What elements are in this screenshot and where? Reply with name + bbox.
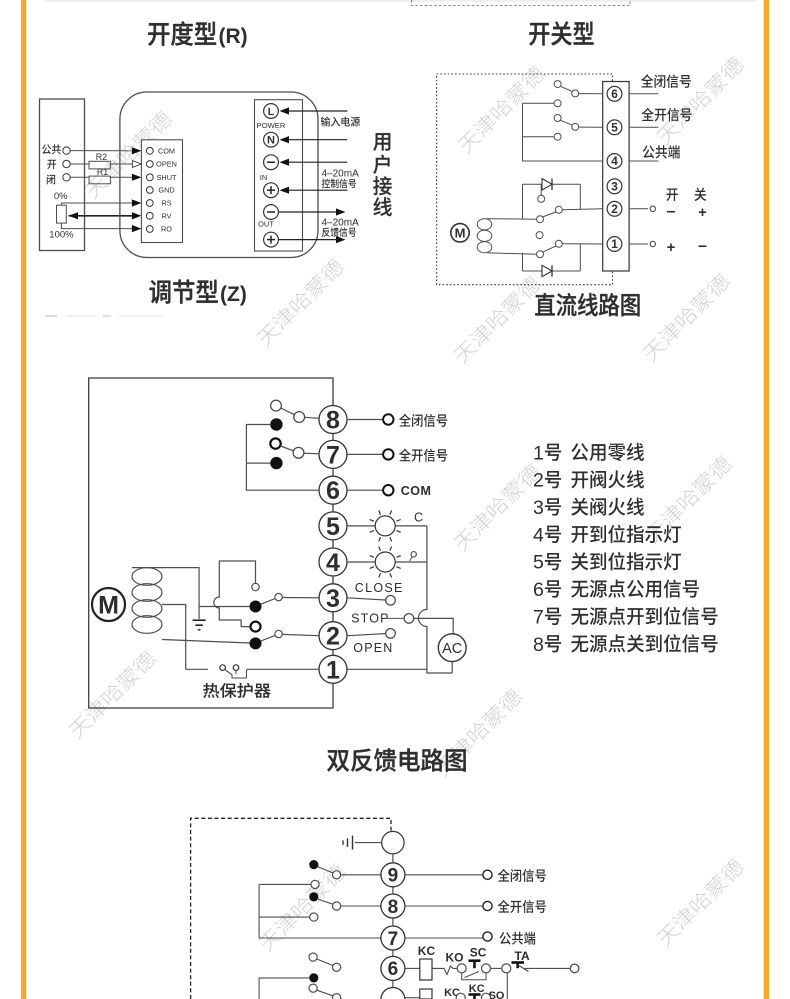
svg-text:4: 4 (611, 154, 618, 168)
svg-text:CLOSE: CLOSE (355, 581, 404, 595)
svg-text:2: 2 (611, 202, 618, 216)
svg-text:COM: COM (401, 484, 432, 498)
svg-text:6: 6 (326, 477, 340, 505)
svg-text:IN: IN (260, 173, 268, 182)
svg-text:L: L (268, 106, 275, 118)
svg-text:KO: KO (446, 951, 464, 965)
svg-text:(Z): (Z) (220, 283, 247, 306)
svg-text:RO: RO (161, 225, 172, 234)
svg-text:SC: SC (470, 946, 487, 960)
svg-text:+: + (667, 240, 675, 256)
svg-text:2: 2 (326, 623, 340, 651)
svg-text:7: 7 (326, 441, 340, 469)
svg-text:100%: 100% (49, 230, 74, 241)
svg-text:6: 6 (388, 959, 399, 980)
svg-text:9: 9 (388, 866, 399, 887)
svg-text:3: 3 (326, 585, 340, 613)
svg-text:4–20mA: 4–20mA (322, 218, 360, 229)
svg-text:7: 7 (533, 606, 544, 628)
svg-text:RV: RV (161, 211, 171, 220)
svg-text:TA: TA (515, 949, 530, 963)
svg-text:4–20mA: 4–20mA (322, 168, 360, 179)
svg-text:+: + (698, 205, 706, 221)
svg-text:2: 2 (533, 470, 544, 492)
svg-text:6: 6 (611, 87, 618, 101)
svg-text:–: – (698, 238, 707, 255)
svg-text:1: 1 (533, 442, 544, 464)
svg-text:3: 3 (611, 180, 618, 194)
svg-text:3: 3 (533, 497, 544, 519)
svg-text:M: M (98, 592, 119, 620)
svg-text:4: 4 (533, 524, 544, 546)
svg-text:1: 1 (326, 656, 340, 684)
svg-text:COM: COM (158, 146, 175, 155)
svg-text:R2: R2 (96, 152, 107, 162)
svg-text:5: 5 (533, 552, 544, 574)
svg-text:0%: 0% (54, 191, 68, 202)
svg-text:OPEN: OPEN (353, 641, 393, 655)
svg-text:OUT: OUT (258, 220, 274, 229)
svg-text:8: 8 (388, 897, 399, 918)
svg-text:6: 6 (533, 579, 544, 601)
svg-text:POWER: POWER (257, 121, 286, 130)
svg-text:RS: RS (161, 199, 171, 208)
svg-text:(R): (R) (219, 25, 248, 48)
svg-text:N: N (267, 135, 275, 147)
svg-text:KC: KC (418, 944, 436, 958)
svg-text:4: 4 (326, 549, 340, 577)
svg-text:–: – (667, 203, 676, 220)
svg-text:7: 7 (388, 929, 399, 950)
svg-text:OPEN: OPEN (156, 160, 177, 169)
svg-text:GND: GND (158, 186, 174, 195)
svg-text:C: C (414, 510, 423, 524)
svg-text:M: M (455, 225, 466, 240)
svg-text:STOP: STOP (351, 612, 390, 626)
svg-text:5: 5 (611, 121, 618, 135)
svg-text:SHUT: SHUT (157, 173, 177, 182)
svg-text:8: 8 (326, 407, 340, 435)
svg-text:1: 1 (611, 237, 618, 251)
svg-text:8: 8 (533, 634, 544, 656)
svg-text:AC: AC (442, 641, 462, 657)
svg-text:5: 5 (326, 513, 340, 541)
